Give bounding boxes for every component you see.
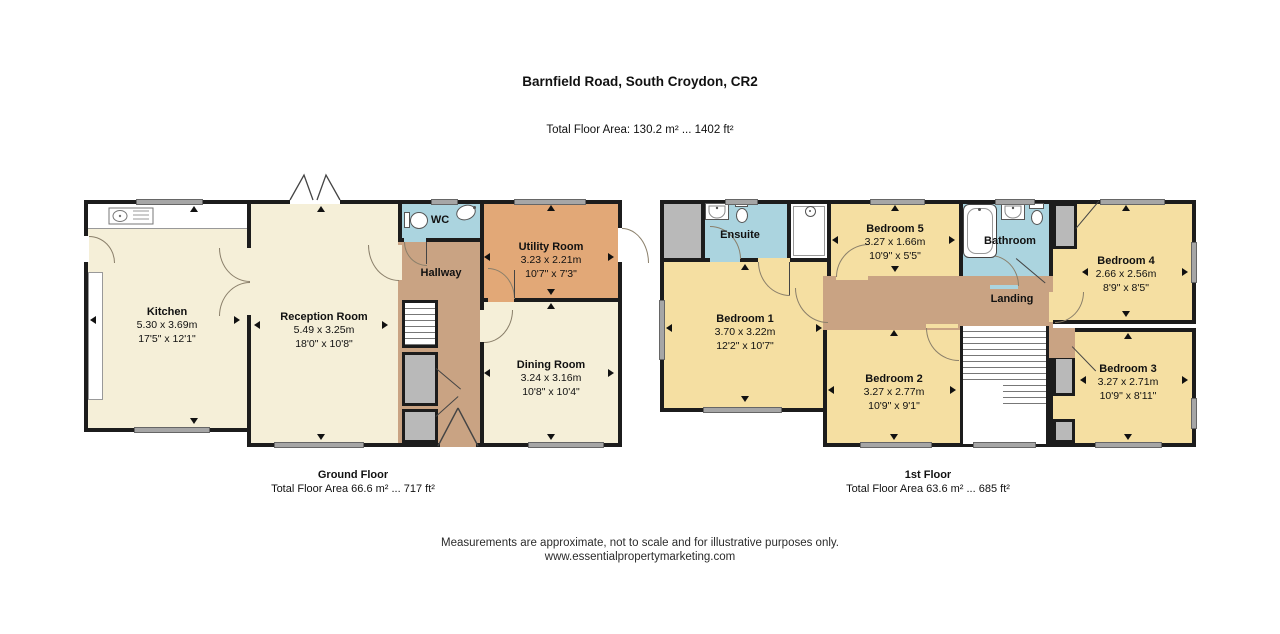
room-label-reception: Reception Room 5.49 x 3.25m 18'0" x 10'8… (280, 310, 367, 352)
dimension-arrow-left (828, 386, 834, 394)
door-opening (1049, 292, 1053, 322)
website-text: www.essentialpropertymarketing.com (0, 550, 1280, 564)
room-label-bedroom4: Bedroom 4 2.66 x 2.56m 8'9" x 8'5" (1096, 254, 1157, 296)
kitchen-sink-icon (108, 207, 154, 225)
stair-steps (405, 303, 435, 345)
window (1100, 199, 1165, 205)
room-label-bedroom5: Bedroom 5 3.27 x 1.66m 10'9" x 5'5" (865, 222, 926, 264)
room-label-bedroom3: Bedroom 3 3.27 x 2.71m 10'9" x 8'11" (1098, 362, 1159, 404)
room-dims-metric: 3.27 x 2.71m (1098, 376, 1159, 390)
disclaimer-text: Measurements are approximate, not to sca… (0, 536, 1280, 550)
kitchen-unit (88, 272, 103, 400)
toilet-icon (1031, 210, 1043, 225)
dimension-arrow-down (547, 289, 555, 295)
window (136, 199, 203, 205)
stair-steps (963, 326, 1046, 380)
floor-area: Total Floor Area 63.6 m² ... 685 ft² (660, 482, 1196, 496)
dimension-arrow-up (741, 264, 749, 270)
dimension-arrow-right (608, 369, 614, 377)
closet (1053, 419, 1075, 443)
toilet-icon (410, 212, 428, 229)
door-leaf (514, 270, 515, 298)
ground-floor-plan: Kitchen 5.30 x 3.69m 17'5" x 12'1" Recep… (84, 200, 622, 447)
hallway-closet (402, 352, 438, 406)
room-dims-metric: 5.49 x 3.25m (280, 324, 367, 338)
dimension-arrow-up (890, 330, 898, 336)
dimension-arrow-right (816, 324, 822, 332)
dimension-arrow-up (1124, 333, 1132, 339)
room-label-dining: Dining Room 3.24 x 3.16m 10'8" x 10'4" (517, 358, 585, 400)
room-name: WC (431, 213, 449, 227)
room-name: Bedroom 2 (864, 372, 925, 386)
sink-icon (705, 203, 729, 220)
sink-icon (1001, 203, 1025, 220)
floor-label: 1st Floor (660, 468, 1196, 482)
stair-steps (1003, 380, 1046, 406)
room-label-bedroom1: Bedroom 1 3.70 x 3.22m 12'2" x 10'7" (715, 312, 776, 354)
tap-icon (473, 206, 476, 209)
dimension-arrow-down (1122, 311, 1130, 317)
stairs (402, 300, 438, 348)
dimension-arrow-right (382, 321, 388, 329)
bathtub-icon (963, 204, 997, 258)
dimension-arrow-left (1080, 376, 1086, 384)
dimension-arrow-down (190, 418, 198, 424)
dimension-arrow-left (832, 236, 838, 244)
door-opening (1049, 328, 1075, 358)
dimension-arrow-down (890, 434, 898, 440)
room-label-hallway: Hallway (421, 266, 462, 280)
shower-head-icon (805, 206, 816, 217)
room-dims-imperial: 10'9" x 9'1" (864, 400, 925, 414)
stairs (960, 326, 1049, 447)
room-dims-imperial: 18'0" x 10'8" (280, 338, 367, 352)
window (703, 407, 782, 413)
shower-head-icon (809, 210, 811, 212)
window (274, 442, 364, 448)
room-dims-imperial: 10'9" x 8'11" (1098, 390, 1159, 404)
closet (660, 200, 705, 262)
room-name: Ensuite (720, 228, 760, 242)
toilet-icon (736, 208, 748, 223)
window (431, 199, 458, 205)
room-name: Bedroom 1 (715, 312, 776, 326)
front-door-icon (434, 404, 482, 448)
dimension-arrow-right (234, 316, 240, 324)
room-name: Dining Room (517, 358, 585, 372)
window (1095, 442, 1162, 448)
room-label-landing: Landing (991, 292, 1034, 306)
dimension-arrow-up (891, 205, 899, 211)
closet (1053, 203, 1077, 249)
room-dims-metric: 3.70 x 3.22m (715, 326, 776, 340)
room-label-bedroom2: Bedroom 2 3.27 x 2.77m 10'9" x 9'1" (864, 372, 925, 414)
room-name: Reception Room (280, 310, 367, 324)
room-dims-metric: 2.66 x 2.56m (1096, 268, 1157, 282)
room-dims-metric: 3.27 x 2.77m (864, 386, 925, 400)
room-label-ensuite: Ensuite (720, 228, 760, 242)
dimension-arrow-up (317, 206, 325, 212)
floor-label: Ground Floor (84, 468, 622, 482)
dimension-arrow-right (1182, 268, 1188, 276)
room-name: Utility Room (519, 240, 584, 254)
first-floor-plan: Bedroom 1 3.70 x 3.22m 12'2" x 10'7" Bed… (660, 200, 1196, 447)
room-name: Kitchen (137, 305, 198, 319)
room-name: Bedroom 5 (865, 222, 926, 236)
dimension-arrow-left (484, 253, 490, 261)
dimension-arrow-left (484, 369, 490, 377)
window (1191, 398, 1197, 429)
room-dims-metric: 3.27 x 1.66m (865, 236, 926, 250)
french-doors-icon (287, 173, 343, 201)
dimension-arrow-up (547, 205, 555, 211)
room-dims-imperial: 8'9" x 8'5" (1096, 282, 1157, 296)
footer: Measurements are approximate, not to sca… (0, 536, 1280, 564)
room-dims-imperial: 12'2" x 10'7" (715, 340, 776, 354)
dimension-arrow-right (608, 253, 614, 261)
window (134, 427, 210, 433)
room-dims-imperial: 10'9" x 5'5" (865, 250, 926, 264)
dimension-arrow-left (666, 324, 672, 332)
room-name: Landing (991, 292, 1034, 306)
first-floor-caption: 1st Floor Total Floor Area 63.6 m² ... 6… (660, 468, 1196, 496)
tap-icon (978, 208, 981, 211)
dimension-arrow-left (1082, 268, 1088, 276)
room-label-bathroom: Bathroom (984, 234, 1036, 248)
hallway-closet (402, 409, 438, 443)
dimension-arrow-down (1124, 434, 1132, 440)
dimension-arrow-left (254, 321, 260, 329)
dimension-arrow-up (1122, 205, 1130, 211)
room-dims-metric: 3.24 x 3.16m (517, 372, 585, 386)
dimension-arrow-right (1182, 376, 1188, 384)
window (973, 442, 1036, 448)
dimension-arrow-up (190, 206, 198, 212)
closet (1053, 356, 1075, 396)
room-name: Bedroom 3 (1098, 362, 1159, 376)
dimension-arrow-right (950, 386, 956, 394)
ground-floor-caption: Ground Floor Total Floor Area 66.6 m² ..… (84, 468, 622, 496)
window (860, 442, 932, 448)
dimension-arrow-up (547, 303, 555, 309)
dimension-arrow-right (949, 236, 955, 244)
window (659, 300, 665, 360)
room-dims-imperial: 10'8" x 10'4" (517, 386, 585, 400)
window (528, 442, 604, 448)
room-name: Bedroom 4 (1096, 254, 1157, 268)
room-dims-imperial: 17'5" x 12'1" (137, 333, 198, 347)
room-name: Bathroom (984, 234, 1036, 248)
room-label-kitchen: Kitchen 5.30 x 3.69m 17'5" x 12'1" (137, 305, 198, 347)
floor-area: Total Floor Area 66.6 m² ... 717 ft² (84, 482, 622, 496)
room-name: Hallway (421, 266, 462, 280)
window (1191, 242, 1197, 283)
dimension-arrow-down (891, 266, 899, 272)
dimension-arrow-down (317, 434, 325, 440)
door-arc (622, 228, 649, 263)
window (995, 199, 1035, 205)
total-floor-area: Total Floor Area: 130.2 m² ... 1402 ft² (0, 124, 1280, 136)
dimension-arrow-left (90, 316, 96, 324)
dimension-arrow-down (547, 434, 555, 440)
room-label-wc: WC (431, 213, 449, 227)
room-label-utility: Utility Room 3.23 x 2.21m 10'7" x 7'3" (519, 240, 584, 282)
window (725, 199, 758, 205)
room-dims-imperial: 10'7" x 7'3" (519, 268, 584, 282)
room-dims-metric: 5.30 x 3.69m (137, 319, 198, 333)
page-title: Barnfield Road, South Croydon, CR2 (0, 74, 1280, 89)
dimension-arrow-down (741, 396, 749, 402)
room-dims-metric: 3.23 x 2.21m (519, 254, 584, 268)
